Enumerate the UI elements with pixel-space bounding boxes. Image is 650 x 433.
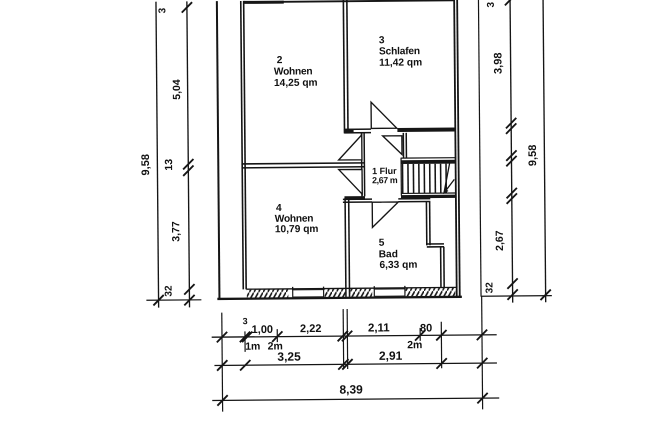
svg-text:5: 5 bbox=[379, 238, 385, 249]
svg-text:9,58: 9,58 bbox=[527, 145, 539, 167]
svg-text:Bad: Bad bbox=[379, 249, 398, 260]
svg-text:Wohnen: Wohnen bbox=[274, 66, 313, 77]
svg-text:2,91: 2,91 bbox=[379, 349, 403, 363]
svg-text:32: 32 bbox=[164, 285, 175, 297]
svg-text:2,11: 2,11 bbox=[368, 322, 390, 334]
svg-text:4: 4 bbox=[276, 203, 282, 214]
svg-text:2m: 2m bbox=[407, 339, 422, 351]
svg-text:13: 13 bbox=[163, 159, 175, 171]
svg-text:2,67 m: 2,67 m bbox=[372, 175, 398, 185]
svg-text:2,22: 2,22 bbox=[300, 323, 322, 335]
svg-text:Schlafen: Schlafen bbox=[379, 46, 420, 57]
svg-text:3,25: 3,25 bbox=[277, 350, 301, 364]
svg-text:8,39: 8,39 bbox=[339, 382, 363, 396]
svg-text:5,04: 5,04 bbox=[171, 79, 183, 100]
svg-text:3: 3 bbox=[243, 316, 248, 326]
svg-text:3: 3 bbox=[157, 7, 168, 13]
svg-text:3,98: 3,98 bbox=[492, 53, 504, 75]
svg-text:1m: 1m bbox=[245, 341, 260, 353]
svg-text:10,79 qm: 10,79 qm bbox=[275, 224, 319, 235]
svg-text:3: 3 bbox=[486, 1, 497, 7]
svg-text:11,42 qm: 11,42 qm bbox=[379, 57, 422, 68]
svg-text:2,67: 2,67 bbox=[494, 230, 506, 251]
svg-text:2: 2 bbox=[277, 55, 283, 66]
svg-text:80: 80 bbox=[420, 322, 432, 334]
svg-text:32: 32 bbox=[484, 282, 495, 294]
svg-text:9,58: 9,58 bbox=[140, 154, 152, 176]
svg-text:14,25 qm: 14,25 qm bbox=[274, 78, 318, 89]
svg-text:6,33 qm: 6,33 qm bbox=[379, 260, 417, 271]
svg-text:1,00: 1,00 bbox=[252, 324, 274, 336]
svg-text:3,77: 3,77 bbox=[170, 221, 182, 242]
svg-text:3: 3 bbox=[379, 35, 385, 46]
